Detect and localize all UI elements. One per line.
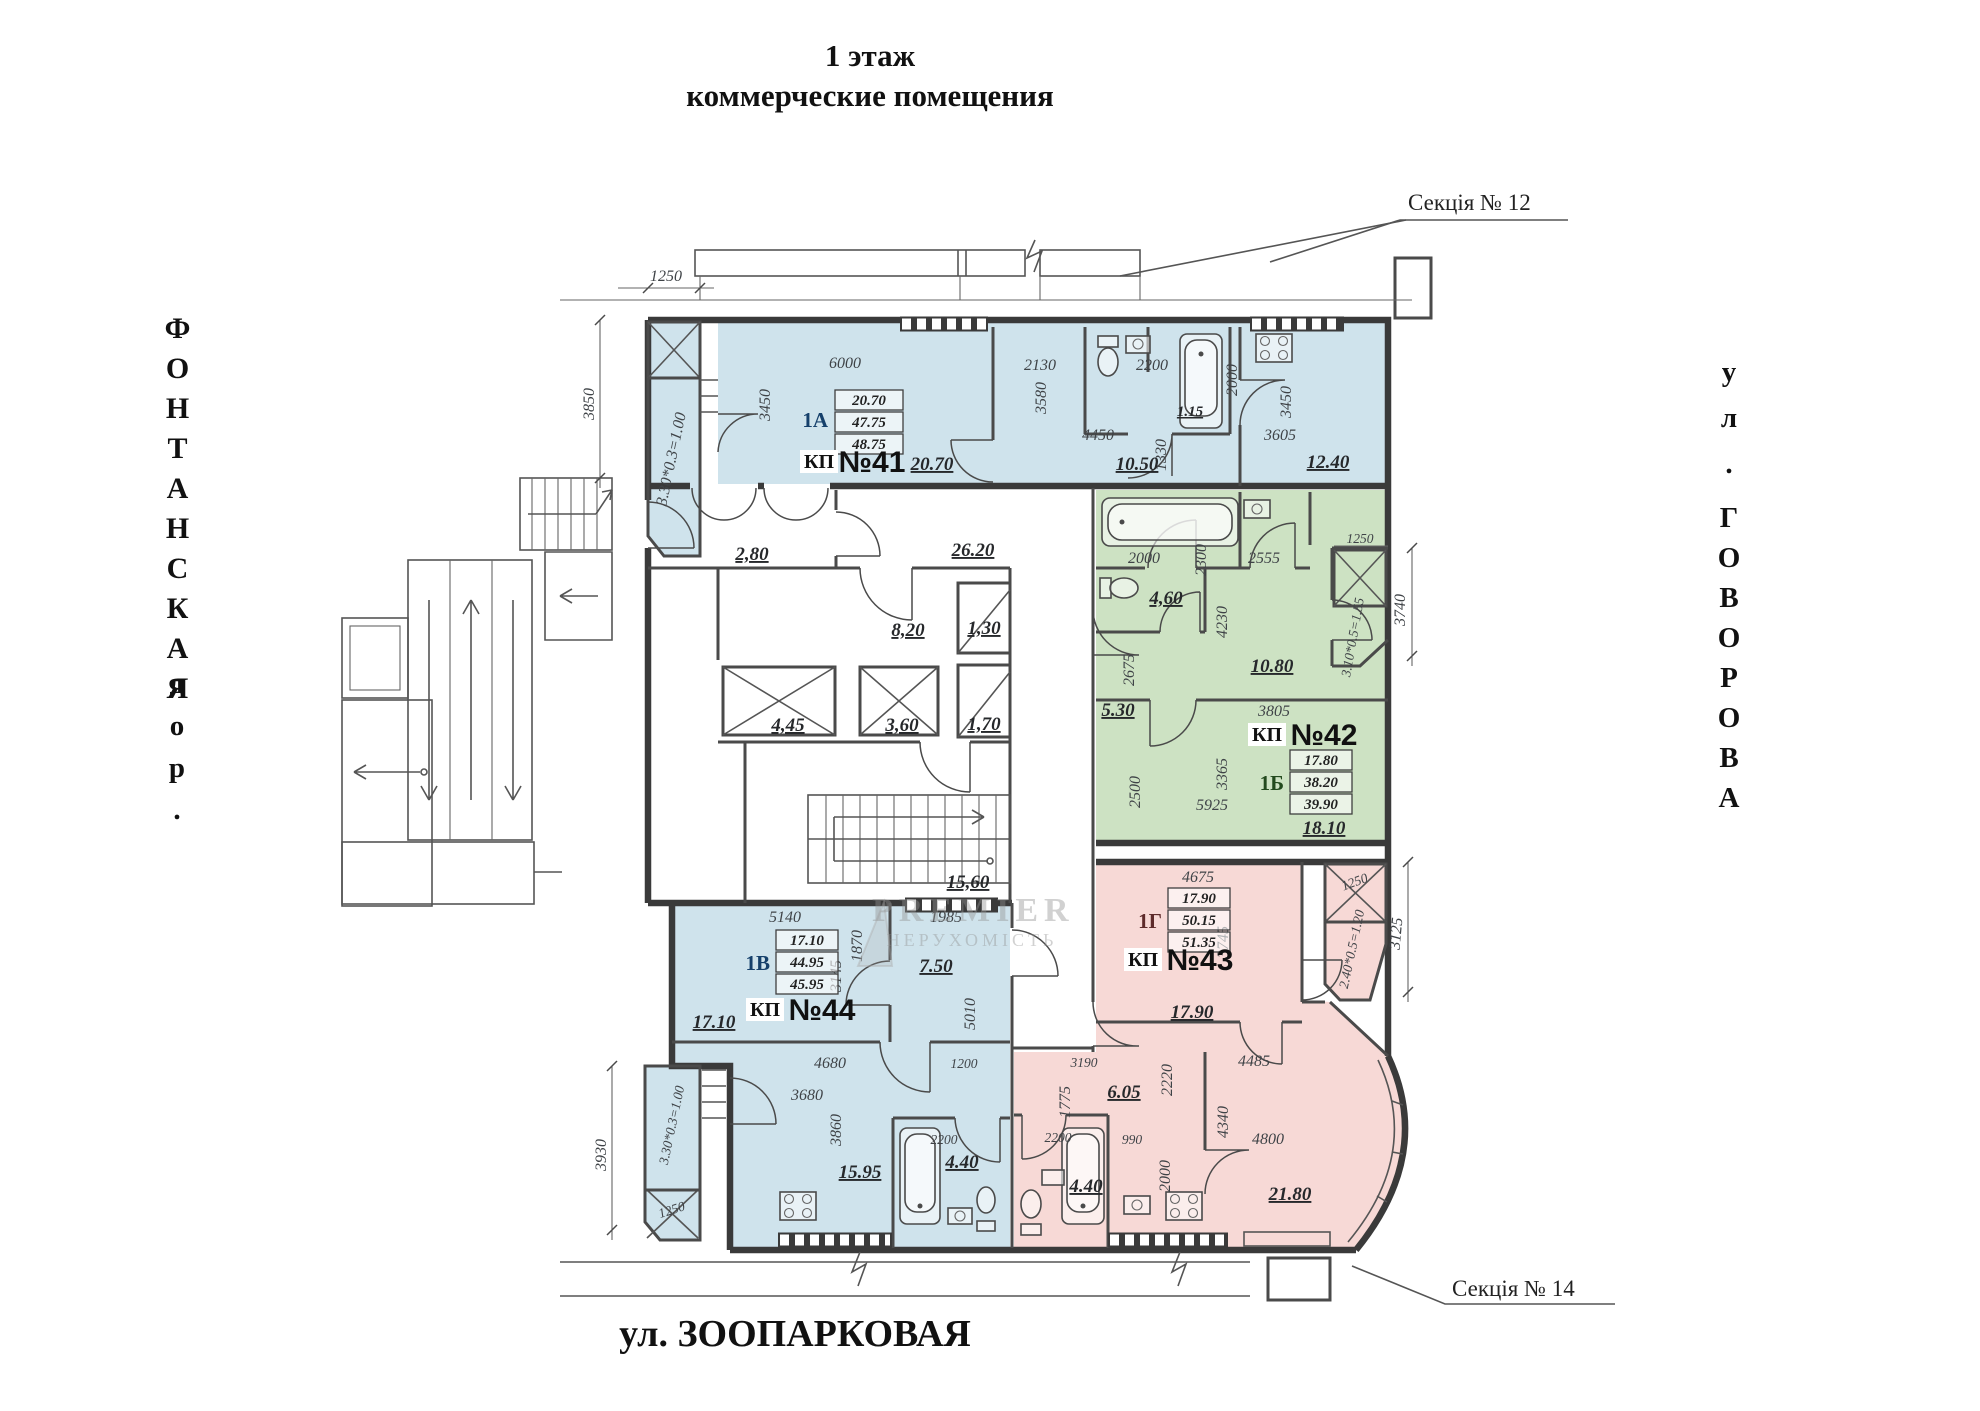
section12-building-outline [560,220,1431,318]
section14-callout: Секція № 14 [560,1252,1615,1304]
dim: 5140 [769,909,801,926]
title-line2: коммерческие помещения [610,76,1130,116]
dim: 3605 [1263,427,1296,444]
area-kitchen: 12.40 [1307,452,1350,473]
kp-prefix: КП [1252,724,1283,746]
dim: 2200 [1136,357,1168,374]
core-staircase [808,795,1010,883]
area-bath: 1.15 [1177,404,1204,420]
area-bath: 4.40 [1068,1176,1103,1197]
sink-icon-kp43 [1042,1170,1064,1185]
outdoor-stairs [342,478,612,906]
dim: 3125 [1387,917,1407,951]
dim: 3450 [757,389,774,422]
area-room: 18.10 [1303,818,1346,839]
dim: 1775 [1057,1086,1074,1118]
floor-plan-drawing: Секція № 12 Секція № 14 6000 3450 2130 3… [0,0,1980,1411]
page-title: 1 этаж коммерческие помещения [610,36,1130,116]
table-row: 44.95 [789,955,824,971]
area-room2: 21.80 [1268,1184,1312,1205]
dim: 4800 [1252,1131,1284,1148]
area-bath: 4,60 [1148,588,1183,609]
toilet-icon-kp42 [1100,578,1138,598]
toilet-icon-kp43 [1021,1190,1041,1235]
dim: 4450 [1082,427,1114,444]
area-tambour: 2,80 [734,544,769,565]
stove-icon-kp41 [1256,334,1292,362]
dim: 3860 [828,1114,845,1147]
toilet-icon-kp44 [977,1187,995,1231]
dim: 6000 [829,355,861,372]
table-row: 17.10 [790,933,824,949]
unit-kp44-fill [672,902,1010,1248]
dim: 3580 [1033,382,1050,415]
dim: 4340 [1215,1106,1232,1138]
watermark-sub: НЕРУХОМІСТЬ [872,929,1072,951]
dim: 3930 [593,1139,610,1172]
dim: 2300 [1193,544,1210,576]
area-hall: 7.50 [919,956,953,977]
dim: 2000 [1128,550,1160,567]
sink-icon-kp41 [1126,336,1150,353]
dim: 2220 [1159,1064,1176,1096]
unit-code: 1Б [1260,771,1284,795]
dim: 5925 [1196,797,1228,814]
area-bath: 4.40 [944,1152,979,1173]
dim: 1250 [650,268,682,285]
sink-icon-kp43-kitchen [1124,1196,1150,1214]
core-labels: 2,80 26.20 8,20 1,30 1,70 4,45 3,60 15,6… [734,540,1001,893]
area-shaft-a: 1,30 [967,618,1001,639]
dim: 2130 [1024,357,1056,374]
area-stairs: 15,60 [947,872,990,893]
area-lift-a: 4,45 [770,715,805,736]
kp-prefix: КП [1128,949,1159,971]
area-hall: 10.80 [1251,656,1294,677]
area-shaft-b: 1,70 [967,714,1001,735]
area-lobby: 8,20 [891,620,925,641]
street-right-name: ГОВОРОВА [1712,502,1745,822]
table-row: 47.75 [851,415,886,431]
watermark-brand: PREMIER [872,893,1072,929]
dim: 3740 [1392,594,1409,627]
area-room1: 17.10 [693,1012,736,1033]
dim: 4485 [1238,1053,1270,1070]
sink-icon-kp42 [1244,500,1270,518]
dim: 3850 [581,388,598,421]
dim: 2000 [1224,364,1241,396]
dim: 3365 [1214,758,1231,791]
table-row: 17.80 [1304,753,1338,769]
street-bottom: ул. ЗООПАРКОВАЯ [590,1312,1000,1356]
section12-label: Секція № 12 [1408,190,1531,215]
watermark: PREMIER НЕРУХОМІСТЬ [872,893,1072,951]
kp-prefix: КП [750,999,781,1021]
dim: 5010 [962,998,979,1030]
table-row: 39.90 [1303,797,1338,813]
table-row: 20.70 [851,393,886,409]
stove-icon-kp44 [780,1192,816,1220]
street-left-name: ФОНТАНСКАЯ [160,312,194,712]
toilet-icon-kp41 [1098,336,1118,376]
dim: 2200 [1045,1130,1072,1145]
floor-plan-page: Секція № 12 Секція № 14 6000 3450 2130 3… [0,0,1980,1411]
dim: 4230 [1214,606,1231,638]
dim: 2500 [1127,776,1144,808]
dim: 4675 [1182,869,1214,886]
dim: 2555 [1248,550,1280,567]
street-right-type: ул. [1712,356,1745,494]
area-kitchen: 15.95 [839,1162,882,1183]
dim: 2675 [1121,654,1138,686]
dim: 990 [1122,1132,1143,1147]
unit-number: №43 [1167,944,1234,977]
dim: 3680 [790,1087,823,1104]
unit-code: 1В [745,951,770,975]
table-row: 38.20 [1303,775,1338,791]
section14-label: Секція № 14 [1452,1276,1575,1301]
unit-number: №44 [789,994,856,1027]
dim: 2200 [931,1132,958,1147]
area-corr: 6.05 [1107,1082,1141,1103]
kp-prefix: КП [804,451,835,473]
unit-number: №42 [1291,719,1358,752]
table-row: 50.15 [1182,913,1216,929]
dim: 1200 [951,1056,978,1071]
bathtub-icon-kp42 [1102,498,1238,546]
dim: 2000 [1157,1160,1174,1192]
area-hall: 10.50 [1116,454,1159,475]
area-main: 20.70 [910,454,954,475]
section12-callout: Секція № 12 [1270,190,1568,262]
street-left-type: дор. [160,668,193,836]
area-corridor: 26.20 [951,540,995,561]
stove-icon-kp43 [1166,1192,1202,1220]
sink-icon-kp44 [948,1208,972,1224]
area-corr: 5.30 [1101,700,1135,721]
dim: 3450 [1278,386,1295,419]
dim: 1250 [1347,531,1374,546]
dim: 4680 [814,1055,846,1072]
dim: 3190 [1070,1055,1098,1070]
table-row: 45.95 [789,977,824,993]
title-line1: 1 этаж [610,36,1130,76]
unit-number: №41 [839,446,906,479]
area-room1: 17.90 [1171,1002,1214,1023]
table-row: 17.90 [1182,891,1216,907]
unit-code: 1Г [1138,909,1162,933]
unit-code: 1А [802,408,829,432]
dim: 3805 [1257,703,1290,720]
area-lift-b: 3,60 [884,715,919,736]
